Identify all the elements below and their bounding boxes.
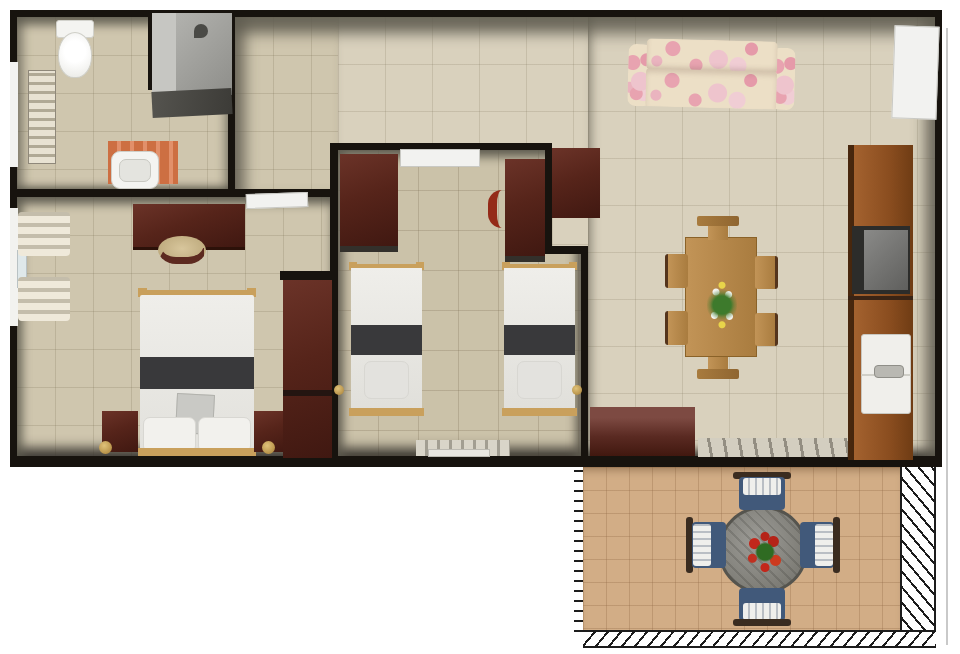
floor-plan-canvas — [0, 0, 960, 654]
twin-white-mat — [428, 449, 490, 457]
living-doormat — [698, 438, 850, 457]
roman-curtain-bottom — [18, 277, 70, 321]
patio-hatched-border-bottom — [583, 630, 936, 648]
twin-wardrobe-left — [340, 154, 398, 252]
twin-wardrobe-right — [505, 159, 545, 262]
bathroom-window — [10, 62, 18, 167]
twin-wall-knob-right — [572, 385, 582, 395]
dining-chair-bottom-back — [697, 369, 739, 379]
twin-left-bed-runner — [351, 325, 422, 355]
roman-curtain-top — [18, 212, 70, 256]
twin-right-bed-runner — [504, 325, 575, 355]
twin-right-bed-pillow — [517, 361, 562, 399]
sideboard — [590, 407, 695, 456]
dining-chair-top-back — [697, 216, 739, 226]
twin-right-lower-wall — [581, 246, 588, 456]
twin-door-leaf — [400, 149, 480, 167]
twin-left-bed-foot-rail — [349, 408, 424, 416]
floor-lamp-left — [99, 441, 112, 454]
patio-hatched-border-left — [574, 467, 583, 632]
patio-chair-bottom-cushion — [743, 603, 781, 620]
patio-hatched-border-right — [900, 467, 936, 648]
dining-chair-top-seat — [708, 226, 728, 240]
washbasin-bowl — [119, 159, 151, 182]
red-chair — [488, 190, 502, 228]
twin-left-bed-pillow — [364, 361, 409, 399]
dining-chair-right-2 — [755, 313, 778, 346]
shower-head-icon — [194, 24, 208, 38]
bed-foot-rail — [138, 448, 256, 456]
dining-chair-left-1 — [665, 254, 688, 288]
twin-right-bed-foot-rail — [502, 408, 577, 416]
patio-chair-left-cushion — [693, 524, 711, 566]
patio-flower-centerpiece — [744, 531, 786, 573]
master-wardrobe — [283, 280, 332, 458]
master-wardrobe-shelf — [283, 390, 332, 396]
kitchen-faucet — [874, 365, 904, 378]
twin-right-upper-wall — [545, 143, 552, 253]
patio-chair-top-cushion — [743, 478, 781, 495]
dining-chair-right-1 — [755, 256, 778, 289]
shower-tray — [151, 88, 232, 118]
sofa-seat — [645, 68, 777, 109]
patio-chair-bottom-frame — [733, 619, 791, 626]
patio-chair-right-frame — [833, 517, 840, 573]
double-bed-runner — [140, 357, 254, 389]
master-door-leaf — [246, 192, 308, 209]
twin-wall-knob-left — [334, 385, 344, 395]
dining-chair-left-2 — [665, 311, 688, 345]
hallway-floor — [235, 17, 338, 189]
floor-lamp-right — [262, 441, 275, 454]
kitchen-unit-divider — [848, 296, 913, 300]
console-cabinet — [552, 148, 600, 218]
patio-chair-right-cushion — [815, 524, 833, 566]
shower-side-panel — [152, 13, 178, 93]
outer-wall-bottom — [10, 456, 942, 467]
dining-centerpiece — [707, 279, 737, 331]
toilet-bowl — [58, 32, 92, 78]
right-edge-line — [946, 28, 948, 645]
cooktop-surface — [864, 230, 908, 290]
towel-radiator — [28, 70, 56, 164]
entry-door-leaf — [891, 25, 939, 120]
hall-top-strip-floor — [338, 17, 588, 150]
floral-sofa — [627, 38, 796, 112]
